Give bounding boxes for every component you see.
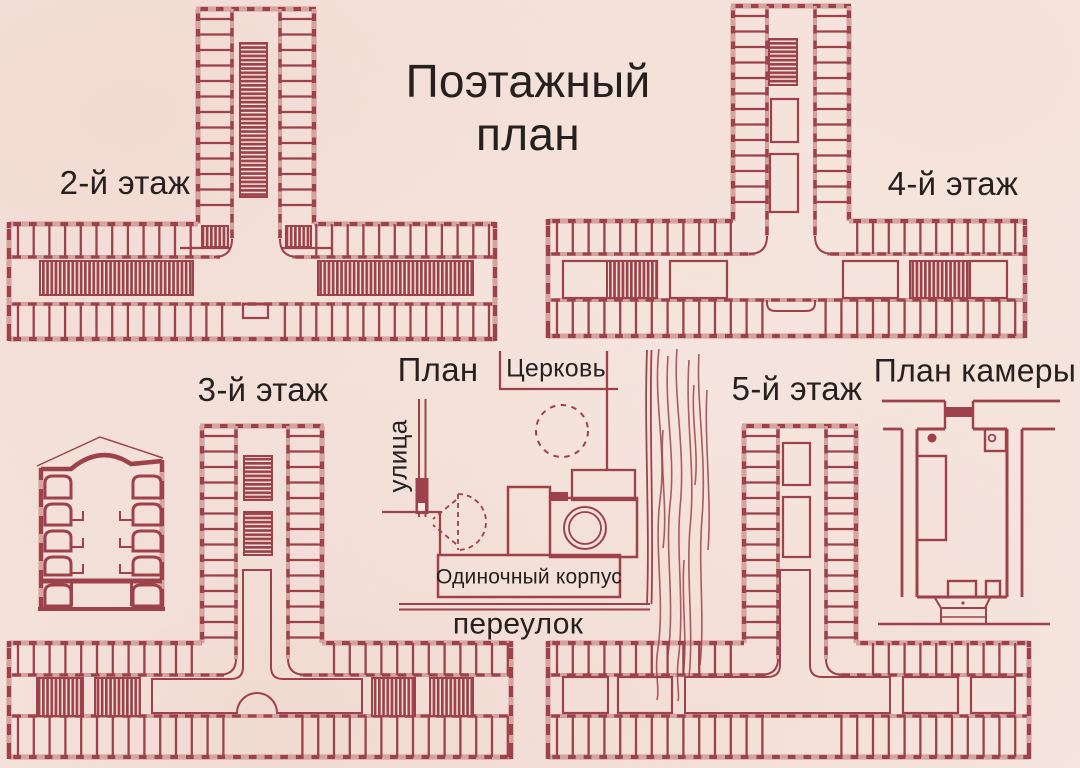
label-cell-plan: План камеры xyxy=(874,353,1076,388)
building-cross-section xyxy=(37,437,165,609)
label-floor-4: 4-й этаж xyxy=(888,166,1019,202)
floor-plan-poster: Поэтажный план 2-й этаж 4-й этаж 3-й эта… xyxy=(0,0,1080,768)
label-street: улица xyxy=(384,420,413,493)
label-lane: переулок xyxy=(453,608,583,641)
plan-floor3-drawing xyxy=(9,426,511,759)
label-floor-3: 3-й этаж xyxy=(198,372,329,408)
label-solitary-building: Одиночный корпус xyxy=(436,565,622,588)
label-site-plan: План xyxy=(398,352,479,388)
label-floor-5: 5-й этаж xyxy=(732,371,863,407)
page-title: Поэтажный план xyxy=(363,55,693,161)
label-church: Церковь xyxy=(506,355,606,383)
cell-plan-drawing xyxy=(878,401,1060,624)
label-floor-2: 2-й этаж xyxy=(60,165,191,201)
